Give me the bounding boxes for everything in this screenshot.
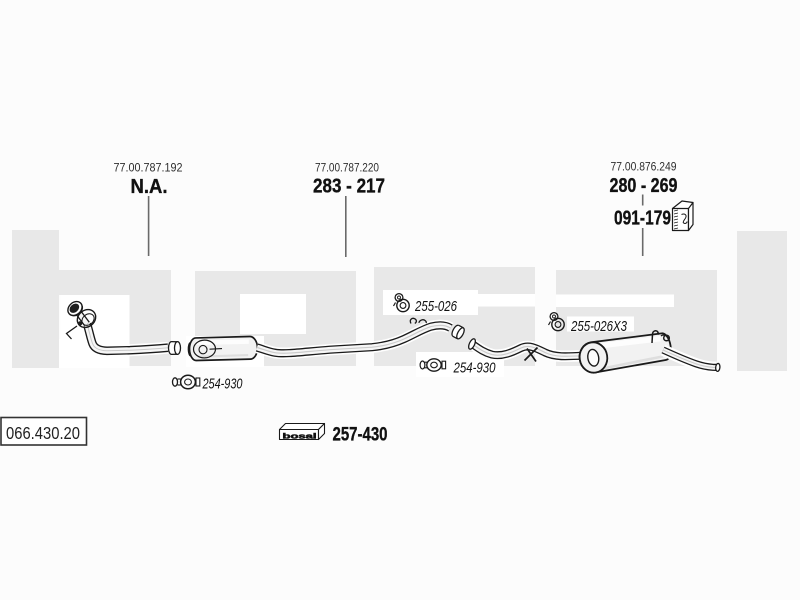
svg-text:283 - 217: 283 - 217: [313, 176, 385, 198]
svg-text:280 - 269: 280 - 269: [610, 175, 678, 197]
svg-text:77.00.787.220: 77.00.787.220: [315, 161, 379, 175]
svg-text:77.00.876.249: 77.00.876.249: [611, 160, 677, 174]
svg-text:091-179: 091-179: [614, 208, 671, 230]
svg-text:254-930: 254-930: [202, 376, 243, 393]
svg-text:255-026X3: 255-026X3: [570, 318, 627, 335]
svg-text:255-026: 255-026: [414, 298, 457, 315]
svg-text:N.A.: N.A.: [131, 176, 168, 198]
svg-text:77.00.787.192: 77.00.787.192: [114, 161, 183, 175]
svg-text:bosal: bosal: [283, 431, 317, 440]
svg-text:257-430: 257-430: [333, 425, 388, 446]
svg-text:066.430.20: 066.430.20: [6, 423, 80, 443]
svg-text:254-930: 254-930: [453, 360, 496, 377]
